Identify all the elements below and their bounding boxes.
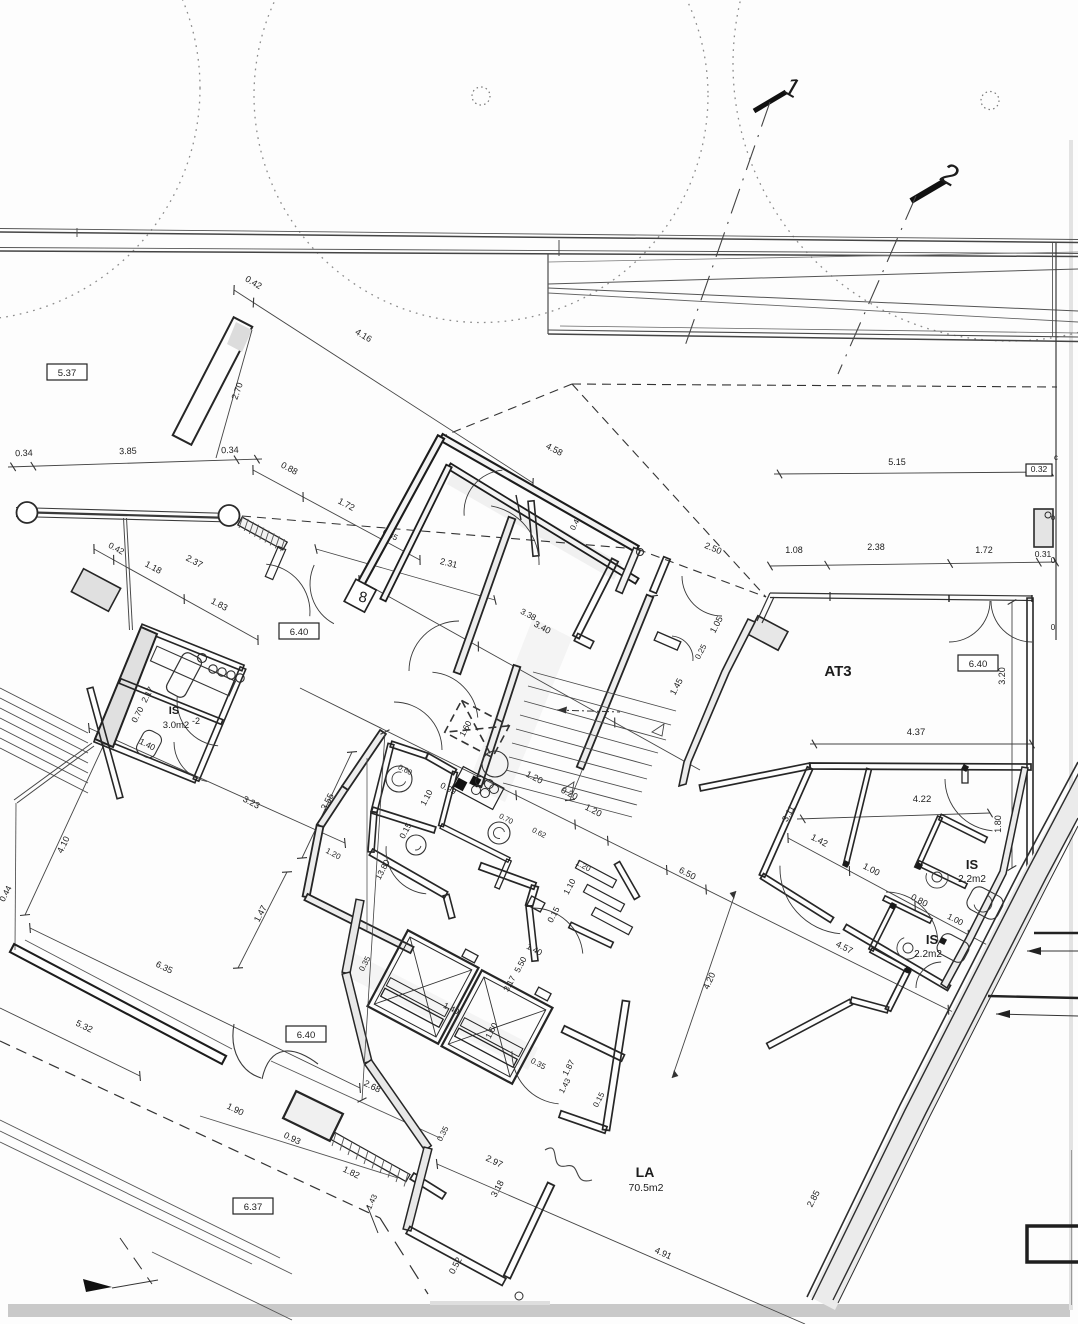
svg-text:6.37: 6.37 <box>244 1202 263 1213</box>
svg-text:IS: IS <box>926 932 939 947</box>
svg-text:0: 0 <box>1051 623 1056 632</box>
svg-text:0.34: 0.34 <box>221 445 239 456</box>
svg-text:4.37: 4.37 <box>907 727 926 738</box>
svg-text:IS: IS <box>966 857 979 872</box>
svg-text:0: 0 <box>1051 556 1056 565</box>
svg-text:1.08: 1.08 <box>785 545 803 555</box>
svg-text:4.22: 4.22 <box>913 794 932 805</box>
svg-text:2.2m2: 2.2m2 <box>914 949 942 960</box>
svg-text:3.0m2: 3.0m2 <box>163 720 189 731</box>
svg-text:0.32: 0.32 <box>1031 464 1048 474</box>
svg-text:0.34: 0.34 <box>15 448 33 459</box>
svg-text:70.5m2: 70.5m2 <box>628 1182 663 1194</box>
svg-text:6.40: 6.40 <box>297 1030 316 1041</box>
svg-text:-2: -2 <box>192 716 200 726</box>
svg-text:3.85: 3.85 <box>119 446 137 457</box>
svg-text:2.2m2: 2.2m2 <box>958 874 986 885</box>
svg-text:5.15: 5.15 <box>888 457 906 467</box>
svg-text:5.37: 5.37 <box>58 368 77 379</box>
svg-text:LA: LA <box>636 1164 655 1180</box>
svg-text:6.40: 6.40 <box>290 627 309 638</box>
svg-text:o: o <box>1051 513 1056 522</box>
svg-text:0.31: 0.31 <box>1035 549 1052 559</box>
svg-text:1.80: 1.80 <box>993 815 1003 833</box>
svg-text:2.38: 2.38 <box>867 542 885 552</box>
svg-text:AT3: AT3 <box>824 663 851 680</box>
svg-text:6.40: 6.40 <box>969 659 988 670</box>
svg-text:IS: IS <box>169 705 179 717</box>
svg-text:1.72: 1.72 <box>975 545 993 555</box>
svg-text:c: c <box>1054 453 1058 462</box>
